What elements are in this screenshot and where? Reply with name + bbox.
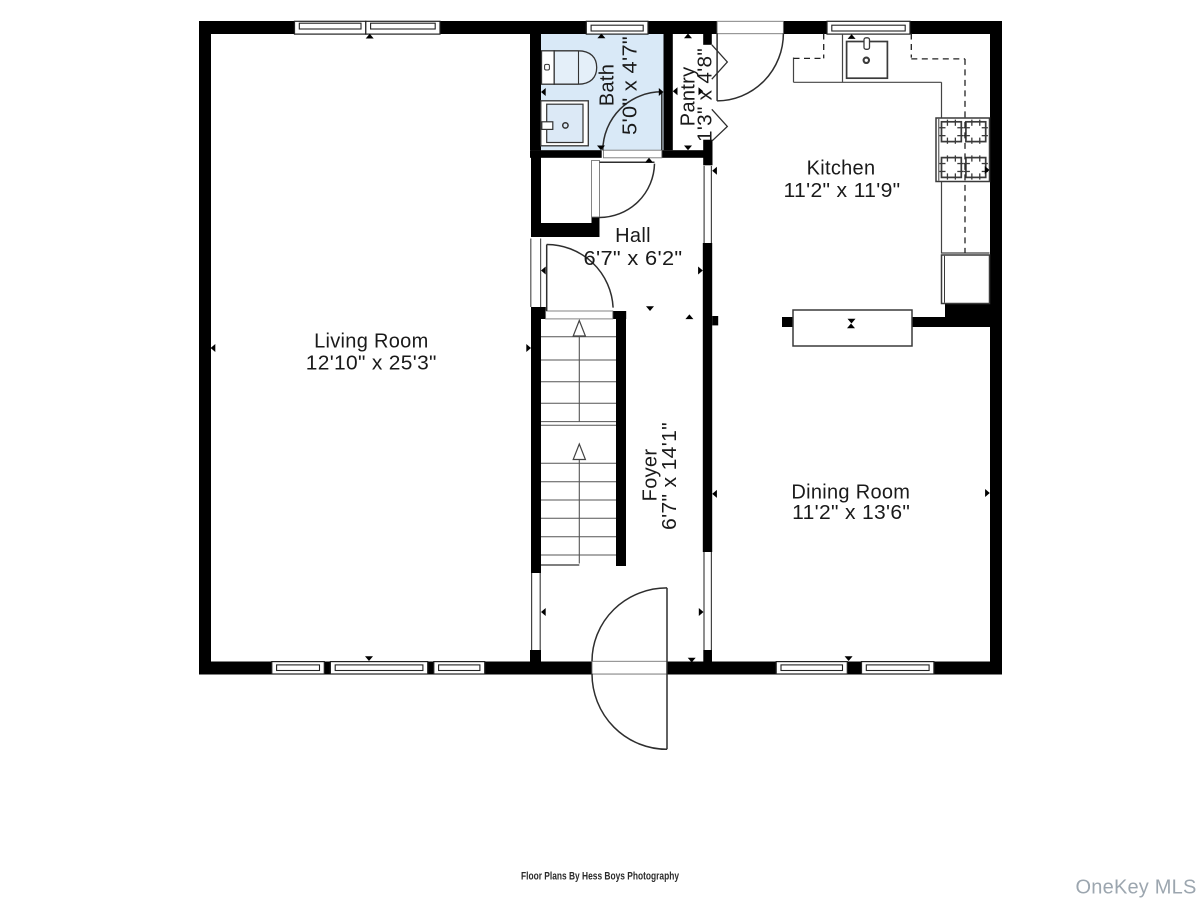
svg-text:6'7" x 14'1": 6'7" x 14'1" [659,422,681,530]
svg-text:Hall: Hall [615,225,651,247]
svg-text:11'2" x 11'9": 11'2" x 11'9" [784,180,901,202]
svg-text:Floor Plans By Hess Boys Photo: Floor Plans By Hess Boys Photography [521,871,679,883]
svg-text:12'10" x 25'3": 12'10" x 25'3" [306,353,437,375]
svg-text:11'2" x 13'6": 11'2" x 13'6" [792,502,910,524]
svg-text:5'0" x 4'7": 5'0" x 4'7" [620,36,642,135]
svg-text:Dining Room: Dining Room [791,481,910,503]
svg-text:OneKey MLS: OneKey MLS [1076,877,1197,899]
svg-text:Bath: Bath [596,64,618,106]
svg-text:1'3" x 4'8": 1'3" x 4'8" [695,48,717,142]
svg-text:Living Room: Living Room [314,331,428,353]
svg-text:6'7" x 6'2": 6'7" x 6'2" [584,248,683,270]
svg-text:Kitchen: Kitchen [807,158,876,180]
